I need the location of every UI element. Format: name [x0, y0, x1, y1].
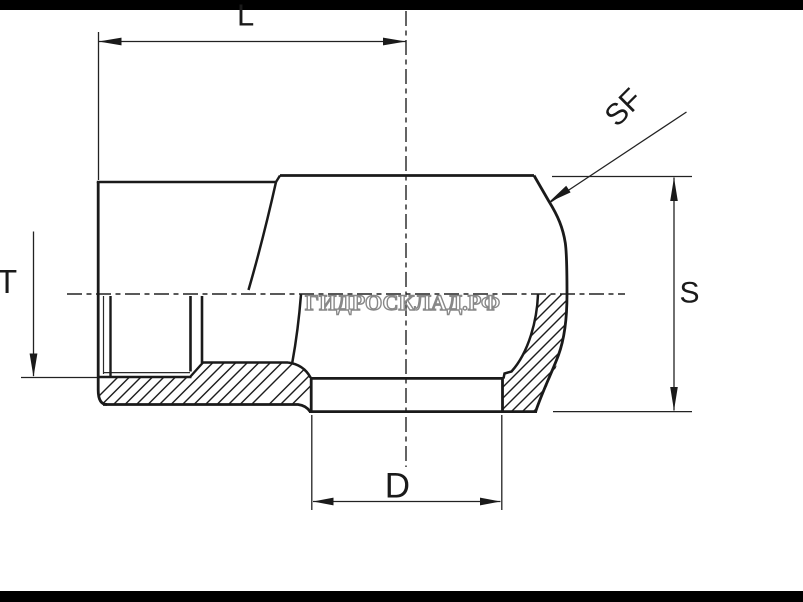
svg-text:ГИДРОСКЛАД.РФ: ГИДРОСКЛАД.РФ: [305, 290, 500, 315]
svg-text:T: T: [0, 263, 17, 300]
svg-text:S: S: [680, 277, 700, 310]
svg-text:D: D: [385, 466, 410, 505]
svg-text:L: L: [237, 0, 254, 33]
